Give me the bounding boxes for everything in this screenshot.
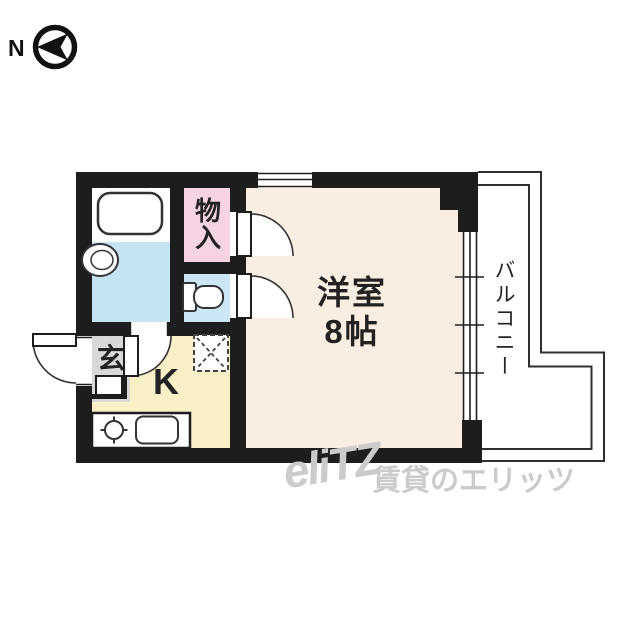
closet-door-leaf-icon <box>237 212 251 256</box>
wall-mid-b <box>230 256 246 274</box>
wall-pillar-top <box>440 188 478 210</box>
wall-closet-toilet <box>184 262 230 274</box>
wall-pillar-top-inner <box>458 210 478 232</box>
washbasin-icon <box>82 244 118 276</box>
floor-plan-image: N 洋室 8帖 物入 バルコニー K 玄 eliTZ 賃貸のエリッツ <box>0 0 640 640</box>
entrance-door <box>33 334 92 385</box>
balcony-label: バルコニー <box>486 238 520 400</box>
toilet-icon <box>183 283 223 311</box>
wall-mid-c <box>230 318 246 448</box>
entrance-door-leaf-icon <box>33 334 76 346</box>
stove-burner-icon <box>105 421 123 439</box>
top-window <box>258 172 312 188</box>
wall-top-right <box>312 172 478 188</box>
wall-mid-a <box>230 188 246 212</box>
western-room-name: 洋室 <box>317 274 387 313</box>
kitchen-counter <box>92 413 190 448</box>
entrance-step <box>92 375 127 397</box>
western-room-label: 洋室 8帖 <box>286 270 418 356</box>
north-label: N <box>8 35 25 61</box>
wall-bath-bottom-left <box>92 322 130 336</box>
north-arrow-icon <box>37 34 68 61</box>
entrance-step-icon <box>96 376 122 395</box>
wall-pillar-bottom <box>462 420 482 448</box>
bathroom-door-opening <box>130 322 168 336</box>
toilet-bowl <box>194 286 223 308</box>
kitchen-sink-icon <box>136 417 178 444</box>
wall-top-left <box>76 172 258 188</box>
bathtub-icon <box>98 193 162 234</box>
western-room-size: 8帖 <box>324 313 379 352</box>
watermark-company-text: 賃貸のエリッツ <box>372 457 575 499</box>
refrigerator-space-icon <box>194 335 228 371</box>
toilet-door-leaf-icon <box>237 274 251 318</box>
kitchen-label: K <box>146 360 186 404</box>
wall-bath-bottom-right <box>168 322 246 336</box>
north-indicator: N <box>8 28 75 67</box>
entrance-opening <box>76 337 92 385</box>
wall-left-lower <box>76 386 92 463</box>
entrance-label: 玄 <box>94 338 128 376</box>
wall-bath-closet <box>170 188 184 322</box>
closet-label: 物入 <box>184 186 230 262</box>
